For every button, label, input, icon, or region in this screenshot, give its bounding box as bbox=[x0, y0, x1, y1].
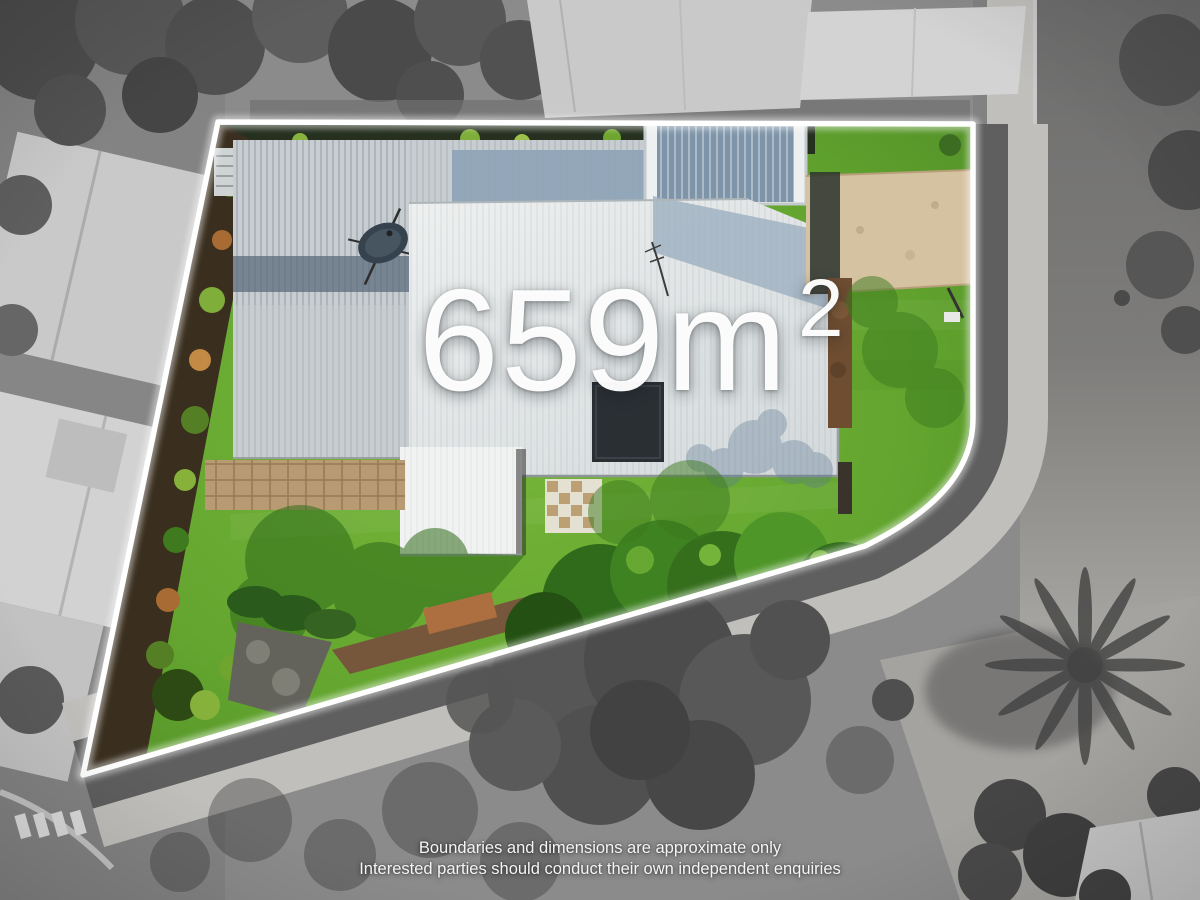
area-size-label: 659m2 bbox=[418, 268, 845, 413]
aerial-property-photo: 659m2 Boundaries and dimensions are appr… bbox=[0, 0, 1200, 900]
disclaimer: Boundaries and dimensions are approximat… bbox=[0, 838, 1200, 880]
disclaimer-line-2: Interested parties should conduct their … bbox=[0, 859, 1200, 880]
area-superscript: 2 bbox=[798, 263, 846, 354]
area-value: 659m bbox=[418, 259, 789, 421]
vignette bbox=[0, 0, 1200, 900]
disclaimer-line-1: Boundaries and dimensions are approximat… bbox=[0, 838, 1200, 859]
aerial-scene bbox=[0, 0, 1200, 900]
